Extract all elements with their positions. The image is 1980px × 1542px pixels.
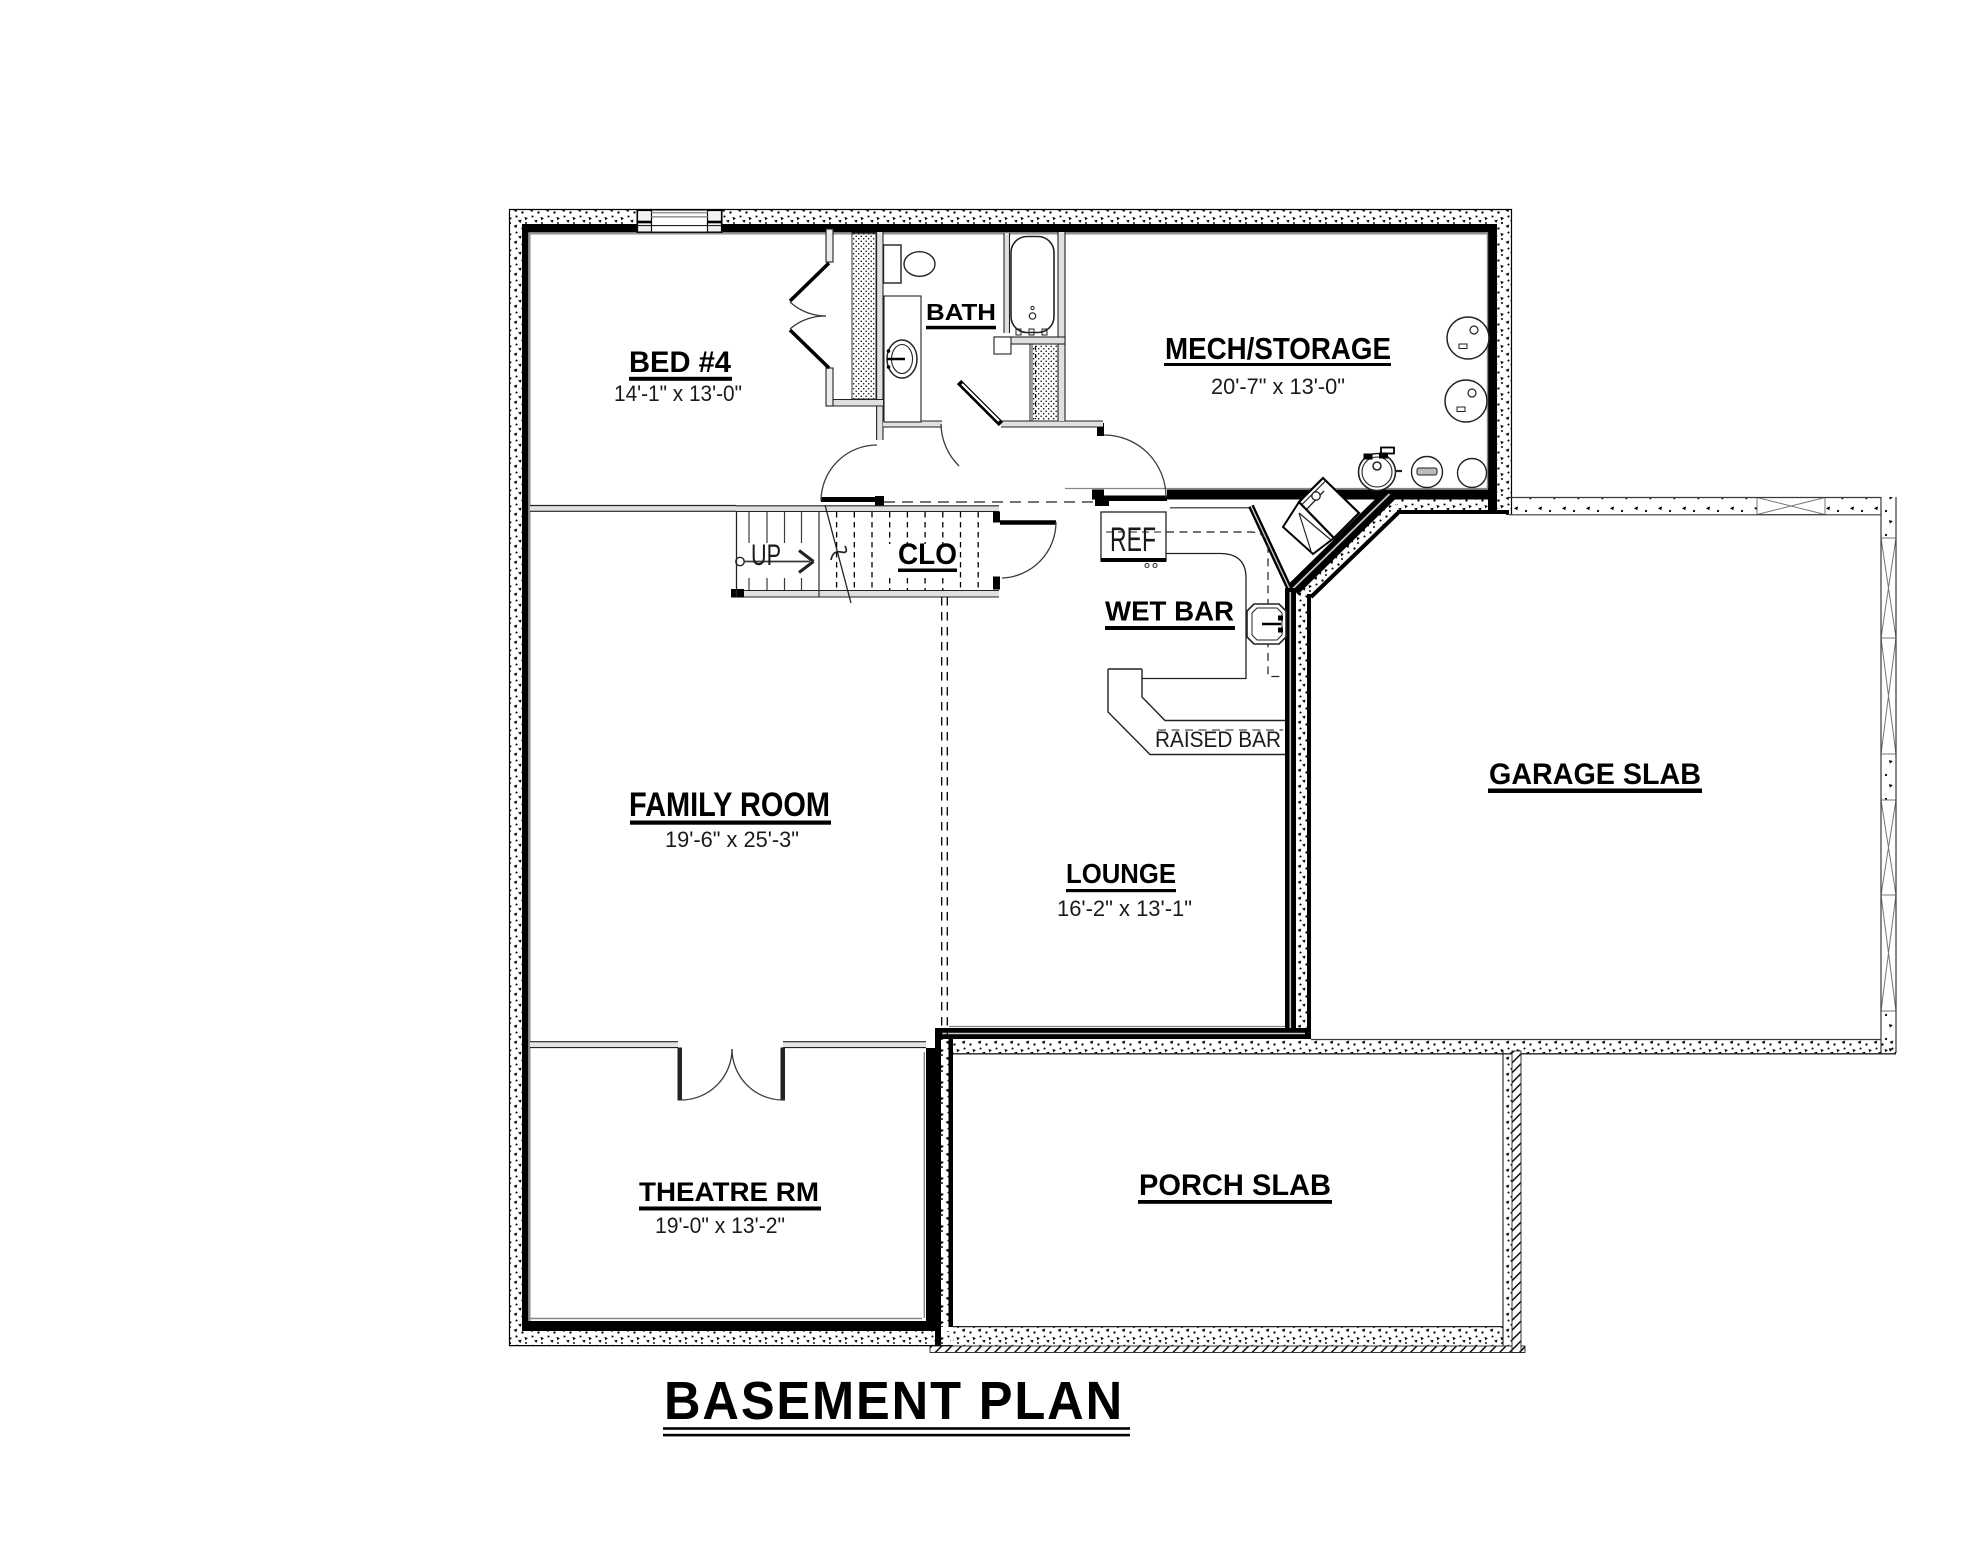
svg-text:FAMILY ROOM: FAMILY ROOM <box>629 786 830 824</box>
svg-text:19'-0" x 13'-2": 19'-0" x 13'-2" <box>655 1213 785 1238</box>
svg-text:20'-7" x 13'-0": 20'-7" x 13'-0" <box>1211 374 1345 399</box>
svg-text:PORCH SLAB: PORCH SLAB <box>1139 1169 1331 1202</box>
svg-text:16'-2" x 13'-1": 16'-2" x 13'-1" <box>1057 896 1192 921</box>
svg-text:MECH/STORAGE: MECH/STORAGE <box>1165 331 1391 366</box>
svg-text:THEATRE RM: THEATRE RM <box>639 1177 819 1207</box>
svg-text:GARAGE SLAB: GARAGE SLAB <box>1489 758 1701 791</box>
svg-text:19'-6" x 25'-3": 19'-6" x 25'-3" <box>665 827 799 852</box>
svg-text:CLO: CLO <box>898 538 957 571</box>
svg-text:RAISED BAR: RAISED BAR <box>1155 727 1281 752</box>
svg-text:BASEMENT PLAN: BASEMENT PLAN <box>664 1371 1124 1431</box>
svg-text:LOUNGE: LOUNGE <box>1066 858 1176 889</box>
svg-text:14'-1" x 13'-0": 14'-1" x 13'-0" <box>614 381 742 406</box>
svg-text:BED #4: BED #4 <box>629 346 731 379</box>
svg-text:BATH: BATH <box>926 299 996 325</box>
svg-text:UP: UP <box>751 539 781 572</box>
svg-text:REF: REF <box>1110 521 1156 559</box>
svg-text:WET BAR: WET BAR <box>1105 596 1234 627</box>
